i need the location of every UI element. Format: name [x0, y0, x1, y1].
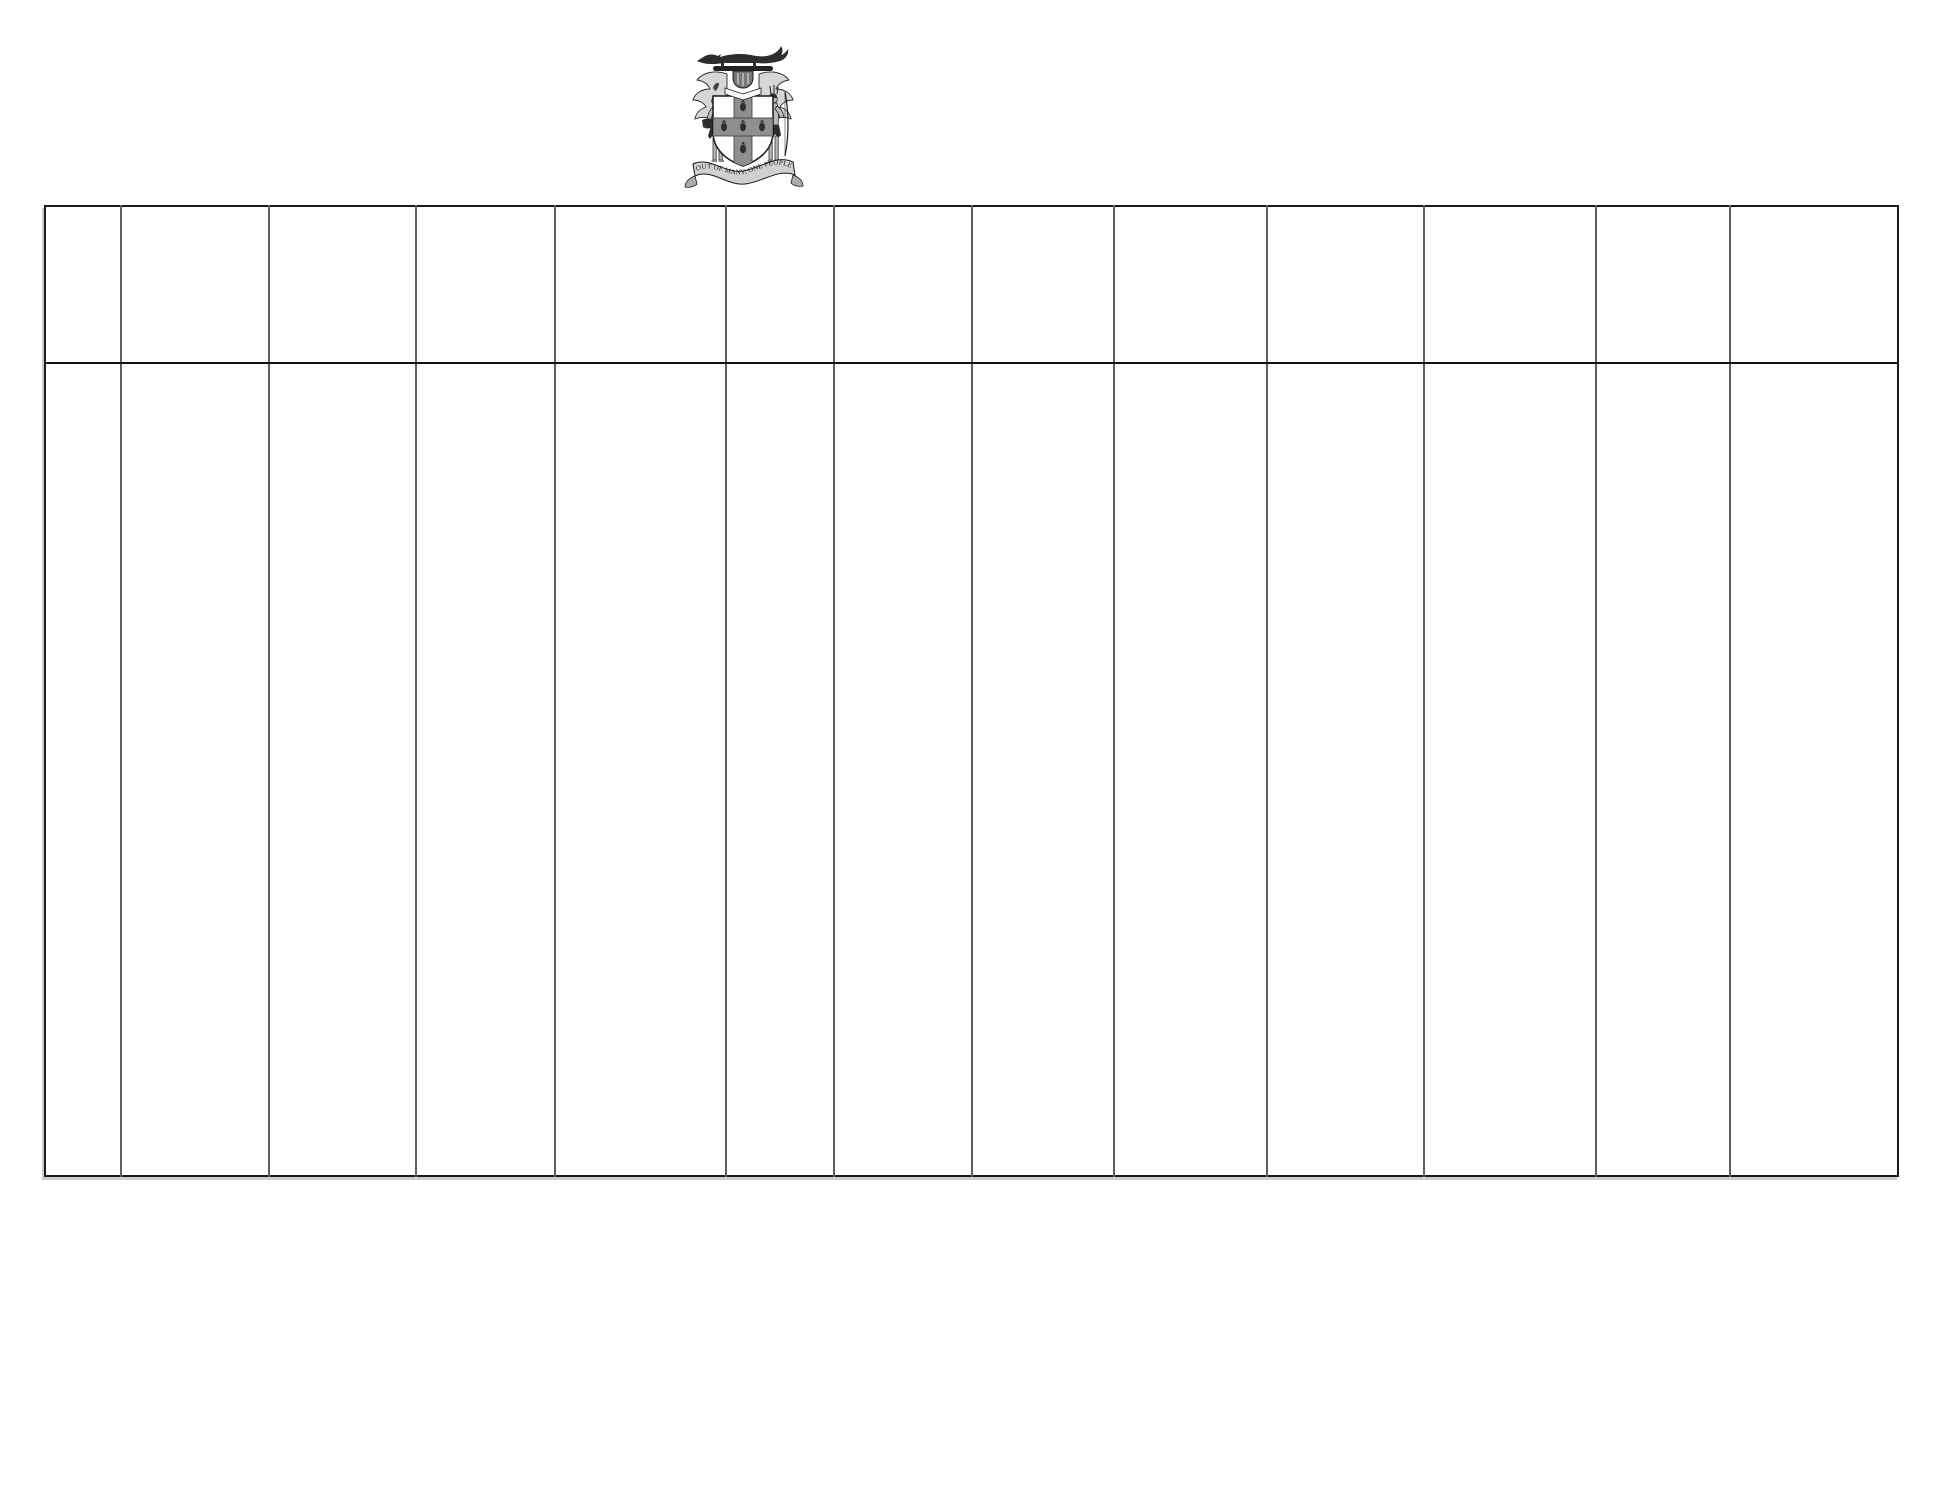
header-cell-10 [1267, 206, 1424, 363]
table-header-row [45, 206, 1898, 363]
body-cell-10 [1267, 363, 1424, 1176]
header-cell-8 [972, 206, 1114, 363]
header-cell-9 [1114, 206, 1267, 363]
body-cell-6 [726, 363, 834, 1176]
body-cell-11 [1424, 363, 1596, 1176]
body-cell-12 [1596, 363, 1730, 1176]
body-cell-9 [1114, 363, 1267, 1176]
body-cell-7 [834, 363, 972, 1176]
body-cell-8 [972, 363, 1114, 1176]
coat-of-arms-svg: OUT OF MANY, ONE PEOPLE [667, 42, 819, 198]
table-head [45, 206, 1898, 363]
header-cell-5 [555, 206, 726, 363]
table-body [45, 363, 1898, 1176]
header-cell-3 [269, 206, 416, 363]
body-cell-1 [45, 363, 121, 1176]
body-cell-3 [269, 363, 416, 1176]
header-cell-7 [834, 206, 972, 363]
blank-form-table [44, 205, 1899, 1177]
header-cell-12 [1596, 206, 1730, 363]
body-cell-4 [416, 363, 555, 1176]
header-cell-6 [726, 206, 834, 363]
header-cell-1 [45, 206, 121, 363]
body-cell-13 [1730, 363, 1898, 1176]
page: OUT OF MANY, ONE PEOPLE [0, 0, 1942, 1500]
table-row [45, 363, 1898, 1176]
body-cell-2 [121, 363, 269, 1176]
body-cell-5 [555, 363, 726, 1176]
jamaica-coat-of-arms: OUT OF MANY, ONE PEOPLE [667, 42, 819, 198]
header-cell-2 [121, 206, 269, 363]
header-cell-4 [416, 206, 555, 363]
header-cell-13 [1730, 206, 1898, 363]
header-cell-11 [1424, 206, 1596, 363]
crocodile-crest-icon [697, 46, 788, 67]
